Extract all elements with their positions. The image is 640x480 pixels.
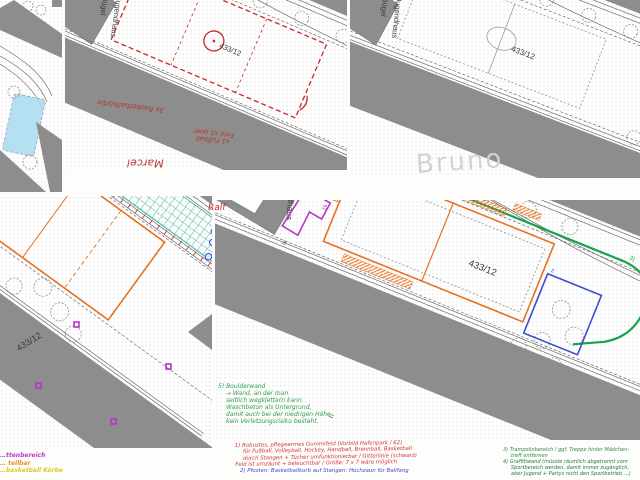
right-note-line: aber Jugend + Partys nicht den Sportbetr…	[503, 471, 640, 477]
plan-fragment-map	[0, 0, 62, 192]
marker-label-3: 3)	[628, 255, 635, 263]
road-band-bottom	[0, 150, 46, 192]
colour-legend: …ttenbereich … teilbar …basketball Körbe	[0, 452, 63, 475]
green-note-title: 5) Boulderwand	[218, 383, 393, 390]
green-note-line: kein Verletzungsrisiko besteht.	[218, 418, 393, 425]
green-note-line: damit auch bei der niedrigen Höhe	[218, 411, 393, 418]
scanned-plan-collage: = 35 Am Bügel Jugendhaus 433/12	[0, 0, 640, 480]
orange-field-outline	[0, 196, 165, 320]
plan-scene: = 35 Am Bügel Jugendhaus 433/12	[65, 0, 347, 170]
author-name-marcel: Marcel	[127, 156, 164, 169]
legend-line-orange: … teilbar	[0, 460, 63, 468]
map-area: 433/12	[0, 196, 212, 448]
marker-label-2: 2	[550, 268, 555, 275]
panel-top-middle-plan: = 35 Am Bügel Jugendhaus 433/12	[65, 0, 347, 170]
road-notch-right	[188, 314, 212, 350]
green-note-line: → Wand, an der man	[218, 390, 393, 397]
handwriting-field-note: x1 Fußball Feld x1 quer	[192, 126, 234, 145]
parcel-number-label: 433/12	[510, 44, 537, 61]
green-note-line: Waschbeton als Untergrund,	[218, 404, 393, 411]
road-corner	[52, 0, 62, 7]
panel-bottom-left-plan: 433/12 …ttenbereich … teilbar …basketbal…	[0, 196, 212, 480]
marker-label-5: 5)	[321, 204, 327, 210]
parcel-number-label: 433/12	[218, 41, 243, 58]
green-note-boulderwand: 5) Boulderwand → Wand, an der man seitli…	[218, 383, 393, 425]
author-name-bruno: Bruno	[415, 145, 504, 181]
red-note-gummifeld: 1) Robustes, pflegearmes Gummifeld (Vorb…	[235, 439, 460, 468]
green-note-right-column: 3) Trampolinbereich / ggf. Treppe hinter…	[503, 447, 640, 477]
author-name-ralf: Ralf	[208, 203, 226, 214]
panel-bottom-right-plan: 3) = 35 Am Bügel Jugendhaus 5) 4)	[215, 200, 640, 480]
blue-note-pfosten: 2) Pfosten: Basketballkorb auf Stangen: …	[240, 468, 409, 474]
road-band-top	[0, 0, 62, 58]
plan-scene	[0, 196, 212, 448]
green-note-line: seitlich wegklettern kann.	[218, 397, 393, 404]
teal-grid-marked-zone	[17, 196, 212, 317]
site-plan-marcel: = 35 Am Bügel Jugendhaus 433/12	[65, 0, 347, 170]
blue-note-line: 2) Pfosten: Basketballkorb auf Stangen: …	[240, 468, 409, 474]
legend-line-magenta: …ttenbereich	[0, 452, 63, 460]
road-band-right	[36, 122, 62, 192]
site-plan-colour-coded: 433/12	[0, 196, 212, 448]
legend-line-yellow: …basketball Körbe	[0, 467, 63, 475]
panel-top-left-plan-fragment	[0, 0, 62, 192]
parcel-number-label: 433/12	[467, 258, 498, 279]
panel-top-right-plan: = 35 Am Bügel Jugendhaus 433/12 Bruno	[350, 0, 640, 178]
